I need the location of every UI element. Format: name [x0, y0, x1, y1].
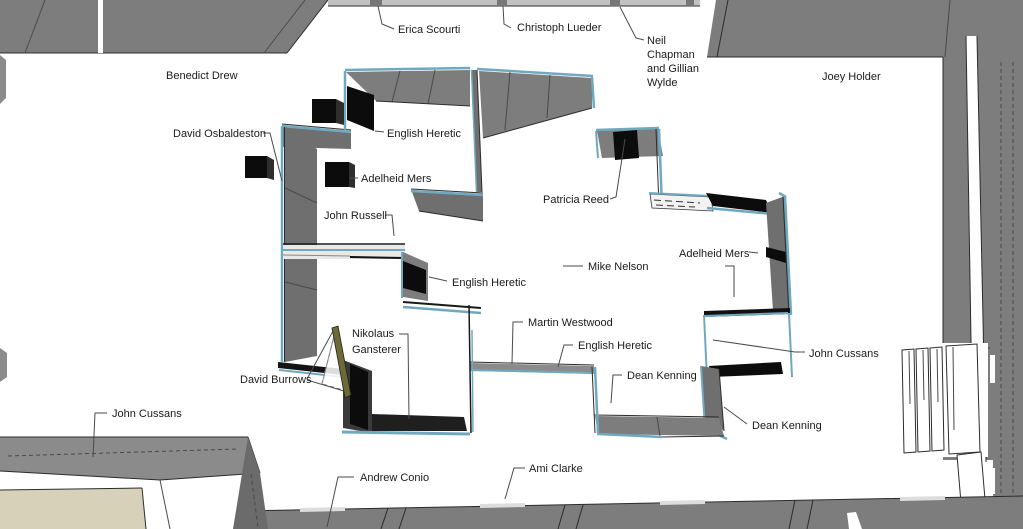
- leader-english-heretic-top: [375, 131, 384, 132]
- leader-erica-scourti: [378, 6, 394, 29]
- label-andrew-conio: Andrew Conio: [360, 472, 429, 484]
- black-cube: [312, 99, 344, 125]
- label-mike-nelson: Mike Nelson: [588, 261, 649, 273]
- leader-dean-kenning-left: [611, 375, 622, 403]
- floor-plan-canvas: Erica Scourti Christoph Lueder Neil Chap…: [0, 0, 1023, 529]
- label-christoph-lueder: Christoph Lueder: [517, 22, 602, 34]
- label-john-russell: John Russell: [324, 210, 387, 222]
- top-left-wall: [0, 0, 328, 53]
- label-dean-kenning-left: Dean Kenning: [627, 370, 697, 382]
- stair-block: [946, 344, 980, 454]
- label-patricia-reed: Patricia Reed: [543, 194, 609, 206]
- label-adelheid-mers-right: Adelheid Mers: [679, 248, 750, 260]
- leader-bracket-right: [725, 266, 734, 297]
- label-erica-scourti: Erica Scourti: [398, 24, 460, 36]
- label-english-heretic-center: English Heretic: [452, 277, 526, 289]
- label-joey-holder: Joey Holder: [822, 71, 881, 83]
- leader-english-heretic-center: [429, 277, 447, 281]
- floor-plan-svg: Erica Scourti Christoph Lueder Neil Chap…: [0, 0, 1023, 529]
- label-dean-kenning-right: Dean Kenning: [752, 420, 822, 432]
- top-strip: [328, 0, 700, 6]
- nikolaus-room: [278, 360, 470, 434]
- label-john-cussans-right: John Cussans: [809, 348, 879, 360]
- wall-gap: [98, 0, 103, 53]
- label-adelheid-mers-left: Adelheid Mers: [361, 173, 432, 185]
- label-english-heretic-bottom: English Heretic: [578, 340, 652, 352]
- room-floor-shadow: [372, 414, 467, 431]
- bottom-left-block: [0, 437, 268, 529]
- label-john-cussans-left: John Cussans: [112, 408, 182, 420]
- adelheid-mers-cube: [325, 162, 355, 188]
- bottom-wall: [240, 496, 1023, 529]
- john-cussans-niche: [704, 308, 792, 378]
- label-david-burrows: David Burrows: [240, 374, 312, 386]
- leader-neil-chapman: [620, 7, 644, 40]
- gallery-edge-wall: [469, 305, 471, 433]
- beige-floor: [0, 488, 146, 529]
- label-benedict-drew: Benedict Drew: [166, 70, 238, 82]
- label-martin-westwood: Martin Westwood: [528, 317, 613, 329]
- label-ami-clarke: Ami Clarke: [529, 463, 583, 475]
- leader-christoph-lueder: [503, 6, 511, 28]
- label-english-heretic-top: English Heretic: [387, 128, 461, 140]
- leader-dean-kenning-right: [724, 407, 747, 424]
- svg-text:Nikolaus: Nikolaus: [352, 328, 395, 340]
- svg-text:Neil: Neil: [647, 35, 666, 47]
- label-nikolaus-gansterer: Nikolaus Gansterer: [352, 328, 401, 356]
- left-edge-wedge: [0, 55, 6, 104]
- leader-ami-clarke: [505, 468, 525, 499]
- svg-text:Chapman: Chapman: [647, 49, 695, 61]
- leader-adelheid-mers-right: [749, 252, 758, 253]
- svg-text:Wylde: Wylde: [647, 77, 677, 89]
- svg-text:and Gillian: and Gillian: [647, 63, 699, 75]
- artwork-patricia-reed: [613, 130, 639, 160]
- black-cube: [245, 156, 274, 180]
- left-edge-wedge: [0, 348, 7, 382]
- leader-martin-westwood: [512, 322, 523, 364]
- label-david-osbaldeston: David Osbaldeston: [173, 128, 266, 140]
- label-neil-chapman-gillian-wylde: Neil Chapman and Gillian Wylde: [647, 35, 699, 89]
- gallery-mid-wall: [412, 192, 483, 221]
- gallery-north-wall-right: [479, 71, 592, 138]
- svg-text:Gansterer: Gansterer: [352, 344, 401, 356]
